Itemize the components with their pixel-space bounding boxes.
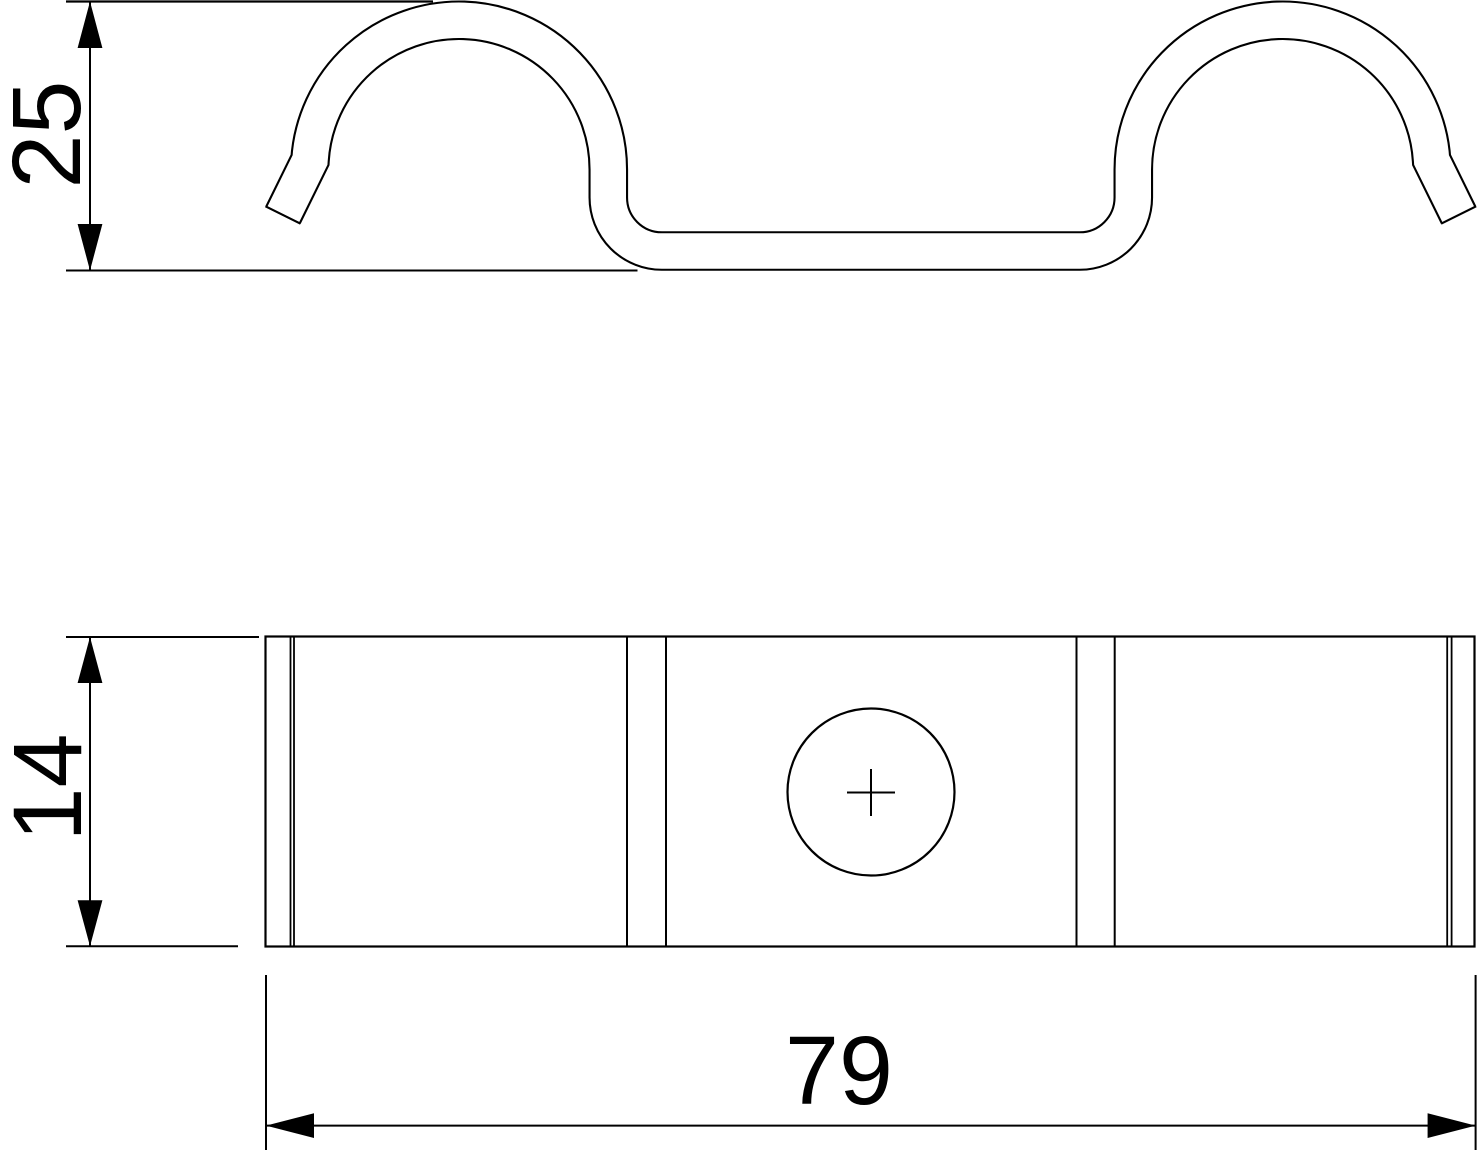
svg-text:14: 14 <box>0 734 102 842</box>
svg-text:25: 25 <box>0 81 101 189</box>
svg-text:79: 79 <box>785 1016 893 1125</box>
